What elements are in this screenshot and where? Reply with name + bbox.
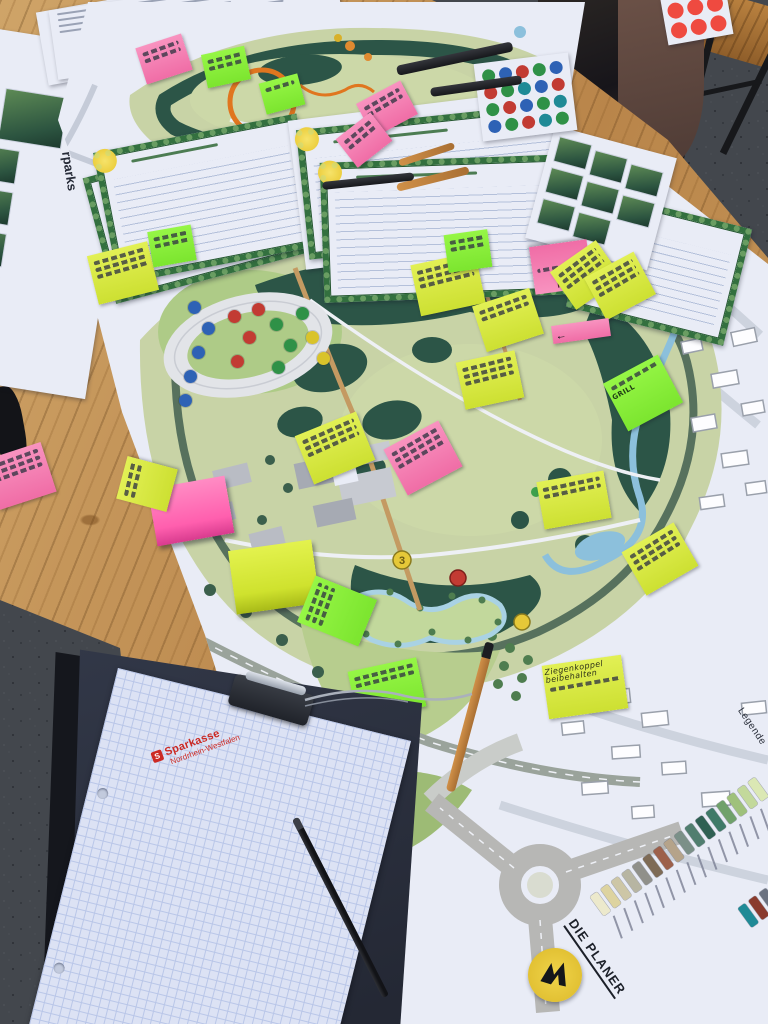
sun-icon — [294, 126, 320, 152]
badge-3: 3 — [399, 555, 405, 567]
dot-sticker-sheet — [474, 53, 578, 142]
sticky-note — [444, 229, 493, 273]
red-dot-sticker — [689, 18, 708, 37]
clip-wire — [300, 678, 480, 728]
dot-sticker — [521, 115, 535, 129]
dot-sticker — [553, 94, 567, 108]
dot-sticker — [486, 102, 500, 116]
sticky-note — [147, 224, 197, 267]
dot-sticker — [532, 62, 546, 76]
planner-logo-icon — [523, 943, 587, 1007]
red-dot-sticker — [686, 0, 705, 16]
sparkasse-logo-icon: S — [150, 749, 164, 763]
dot-sticker — [536, 96, 550, 110]
dot-sticker — [504, 117, 518, 131]
dot-sticker — [538, 113, 552, 127]
red-dot-sticker — [670, 21, 689, 40]
dot-sticker — [534, 79, 548, 93]
workshop-photo: rparks — [0, 0, 768, 1024]
dot-sticker — [502, 100, 516, 114]
red-dot-sticker — [706, 0, 725, 13]
dot-sticker — [555, 111, 569, 125]
arrow-left-icon: ← — [555, 329, 568, 342]
dot-sticker — [519, 98, 533, 112]
sticky-note-koppel: Ziegenkoppel beibehalten — [542, 655, 629, 720]
red-dot-sticker — [709, 14, 728, 33]
dot-sticker — [549, 60, 563, 74]
dot-sticker — [551, 77, 565, 91]
dot-sticker — [488, 119, 502, 133]
red-dot-sticker — [666, 1, 685, 20]
